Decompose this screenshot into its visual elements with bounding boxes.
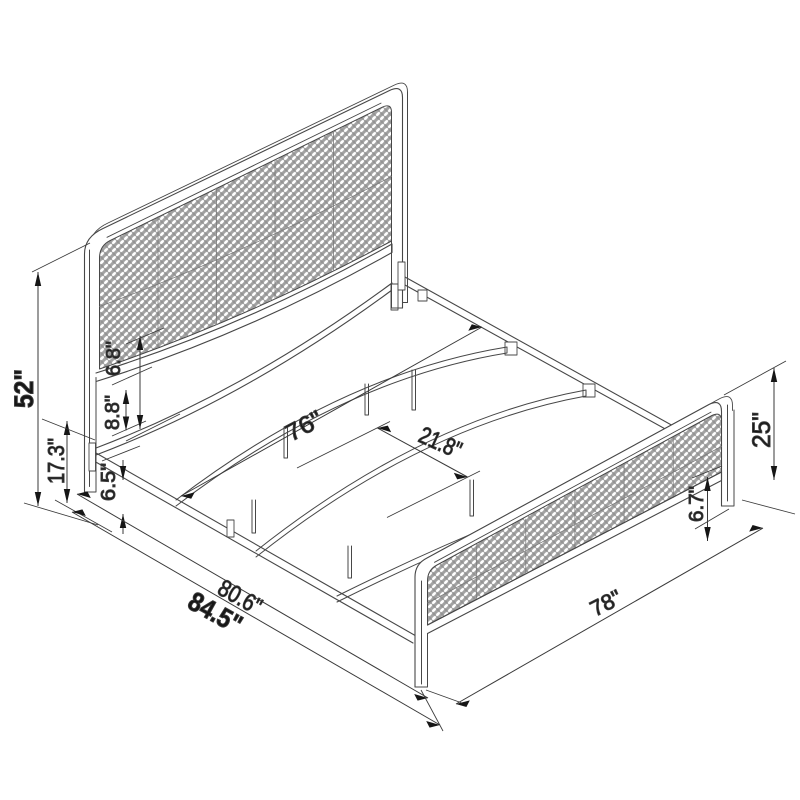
- svg-text:8.8": 8.8": [102, 395, 124, 430]
- svg-text:6.8": 6.8": [103, 341, 125, 376]
- svg-text:76": 76": [281, 406, 327, 448]
- svg-text:52": 52": [9, 369, 39, 408]
- svg-text:6.5": 6.5": [98, 463, 120, 501]
- svg-text:78": 78": [586, 585, 626, 622]
- svg-text:17.3": 17.3": [43, 438, 69, 484]
- svg-text:25": 25": [748, 412, 776, 448]
- svg-text:6.7": 6.7": [686, 486, 708, 522]
